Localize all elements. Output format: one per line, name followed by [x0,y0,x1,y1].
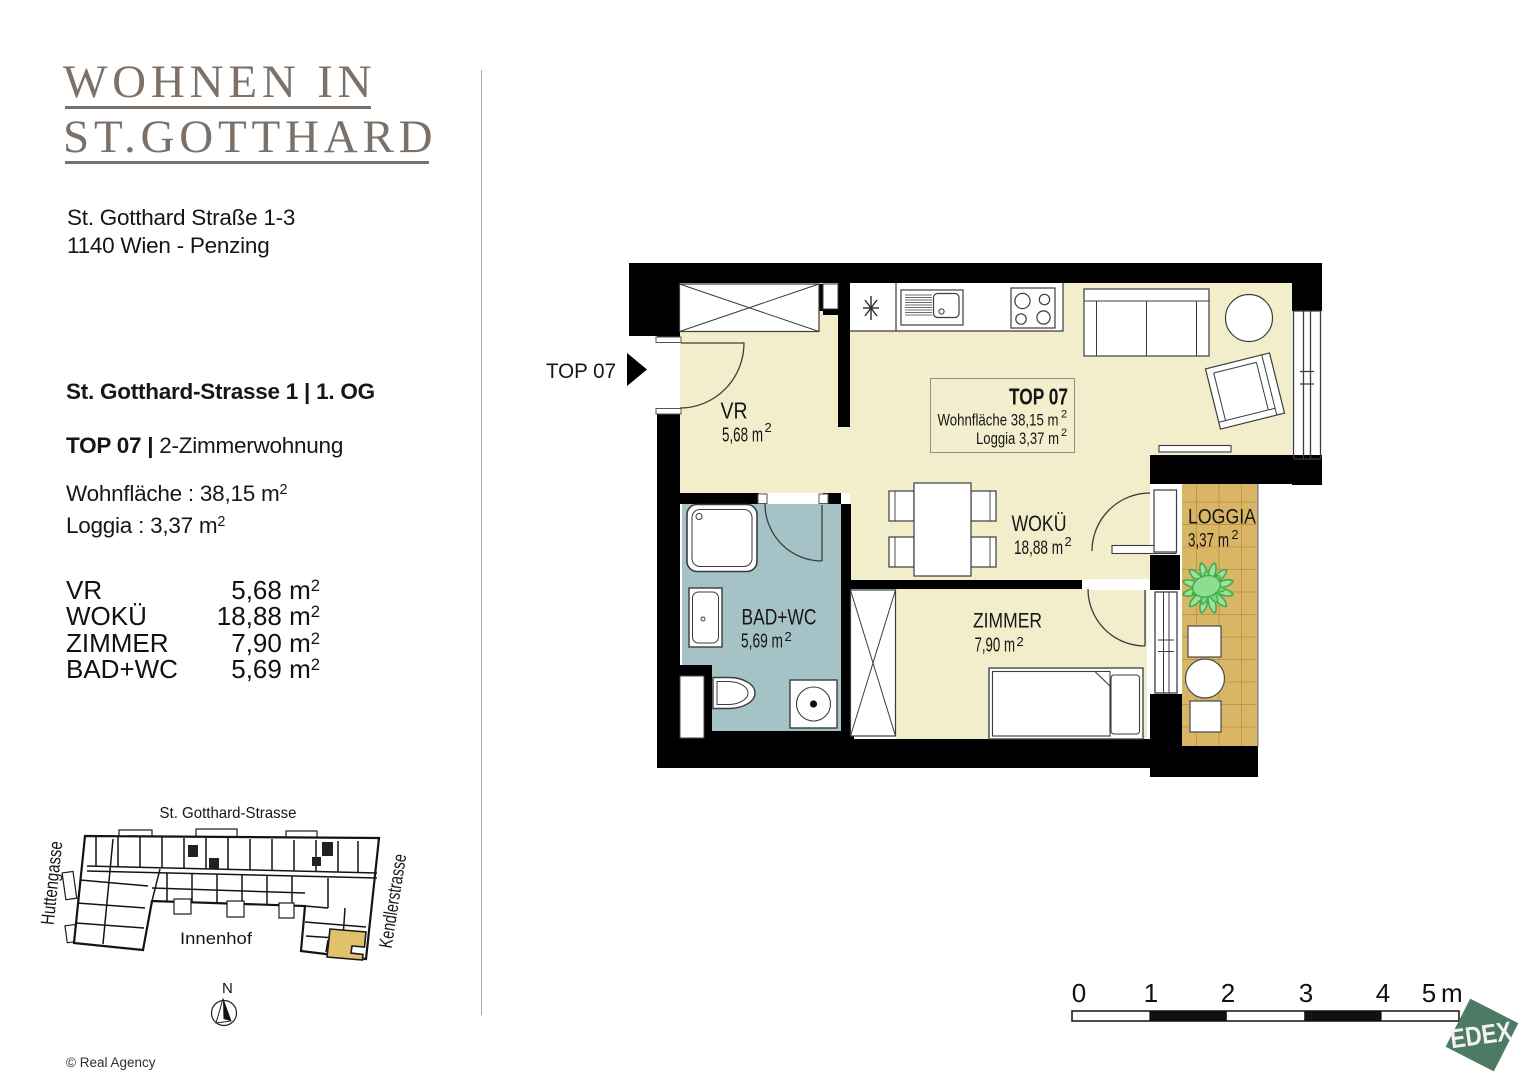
svg-text:2: 2 [765,420,772,435]
svg-text:N: N [222,980,233,997]
svg-text:5: 5 [1422,978,1436,1008]
svg-text:3,37 m: 3,37 m [1188,531,1229,552]
svg-text:7,90 m: 7,90 m [975,635,1016,657]
svg-text:2: 2 [1061,427,1067,439]
svg-text:3: 3 [1299,978,1313,1008]
svg-text:2: 2 [1232,528,1239,542]
svg-text:TOP 07: TOP 07 [1009,384,1068,410]
svg-text:VR: VR [721,398,748,424]
svg-text:St. Gotthard-Strasse: St. Gotthard-Strasse [160,805,297,822]
svg-text:Innenhof: Innenhof [180,929,252,948]
svg-text:Wohnfläche 38,15 m: Wohnfläche 38,15 m [938,411,1059,430]
svg-text:2: 2 [785,629,792,644]
svg-text:1: 1 [1144,978,1158,1008]
svg-text:18,88 m: 18,88 m [1014,537,1063,559]
svg-text:5,69 m: 5,69 m [741,631,783,653]
svg-text:TOP 07: TOP 07 [546,359,616,383]
svg-text:0: 0 [1072,978,1086,1008]
svg-text:Kendlerstrasse: Kendlerstrasse [376,853,412,950]
svg-text:ZIMMER: ZIMMER [973,610,1042,633]
svg-text:Huttengasse: Huttengasse [38,840,68,926]
svg-text:BAD+WC: BAD+WC [742,605,817,630]
svg-text:5,68 m: 5,68 m [722,425,763,447]
svg-text:2: 2 [1065,534,1072,549]
svg-text:WOKÜ: WOKÜ [1012,511,1067,536]
svg-text:2: 2 [1061,409,1067,421]
svg-text:4: 4 [1376,978,1390,1008]
svg-text:2: 2 [1017,634,1024,649]
svg-text:2: 2 [1221,978,1235,1008]
svg-text:LOGGIA: LOGGIA [1188,505,1257,529]
svg-text:m: m [1441,978,1463,1008]
svg-text:Loggia 3,37 m: Loggia 3,37 m [976,429,1059,448]
